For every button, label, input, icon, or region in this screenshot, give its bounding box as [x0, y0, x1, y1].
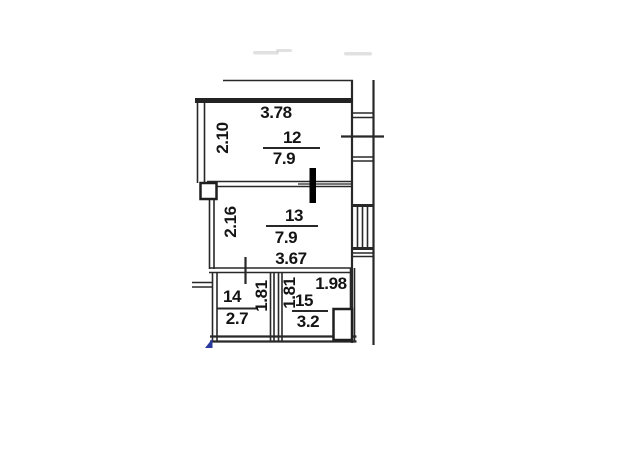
- floor-plan-canvas: 3.78 2.10 12 7.9 2.16 13 7.9 3.67 14 2.7…: [0, 0, 624, 454]
- room-12-labels: 3.78 2.10 12 7.9: [213, 103, 320, 168]
- room-15-width-dim: 1.98: [315, 274, 347, 293]
- room-14-number: 14: [223, 287, 242, 306]
- scan-smudge: [344, 52, 372, 56]
- shaft-box: [334, 309, 353, 340]
- scan-artifacts: [253, 49, 372, 56]
- room-13-number: 13: [285, 206, 303, 225]
- window-bay-room-13: [352, 206, 374, 257]
- room-12-area: 7.9: [273, 149, 295, 168]
- room-14-labels: 14 2.7 1.81: [217, 280, 271, 328]
- room-14-height-dim: 1.81: [252, 280, 271, 312]
- room-12-height-dim: 2.10: [213, 122, 232, 154]
- room-12-width-dim: 3.78: [260, 103, 292, 122]
- room-15-number: 15: [295, 291, 313, 310]
- room-12-number: 12: [283, 128, 301, 147]
- room-15-area: 3.2: [297, 312, 319, 331]
- blue-corner-mark: [205, 339, 213, 349]
- wall-column-box: [201, 183, 217, 199]
- room-14-area: 2.7: [226, 309, 248, 328]
- room-13-labels: 2.16 13 7.9 3.67: [221, 206, 318, 268]
- floor-plan-drawing: 3.78 2.10 12 7.9 2.16 13 7.9 3.67 14 2.7…: [0, 0, 624, 454]
- scan-smudge: [253, 51, 279, 55]
- window-bay-room-12: [341, 113, 384, 161]
- room-13-width-dim: 3.67: [275, 249, 307, 268]
- bold-door-marker: [310, 168, 317, 203]
- room-13-area: 7.9: [275, 228, 297, 247]
- room-13-height-dim: 2.16: [221, 206, 240, 238]
- scan-smudge: [276, 49, 292, 52]
